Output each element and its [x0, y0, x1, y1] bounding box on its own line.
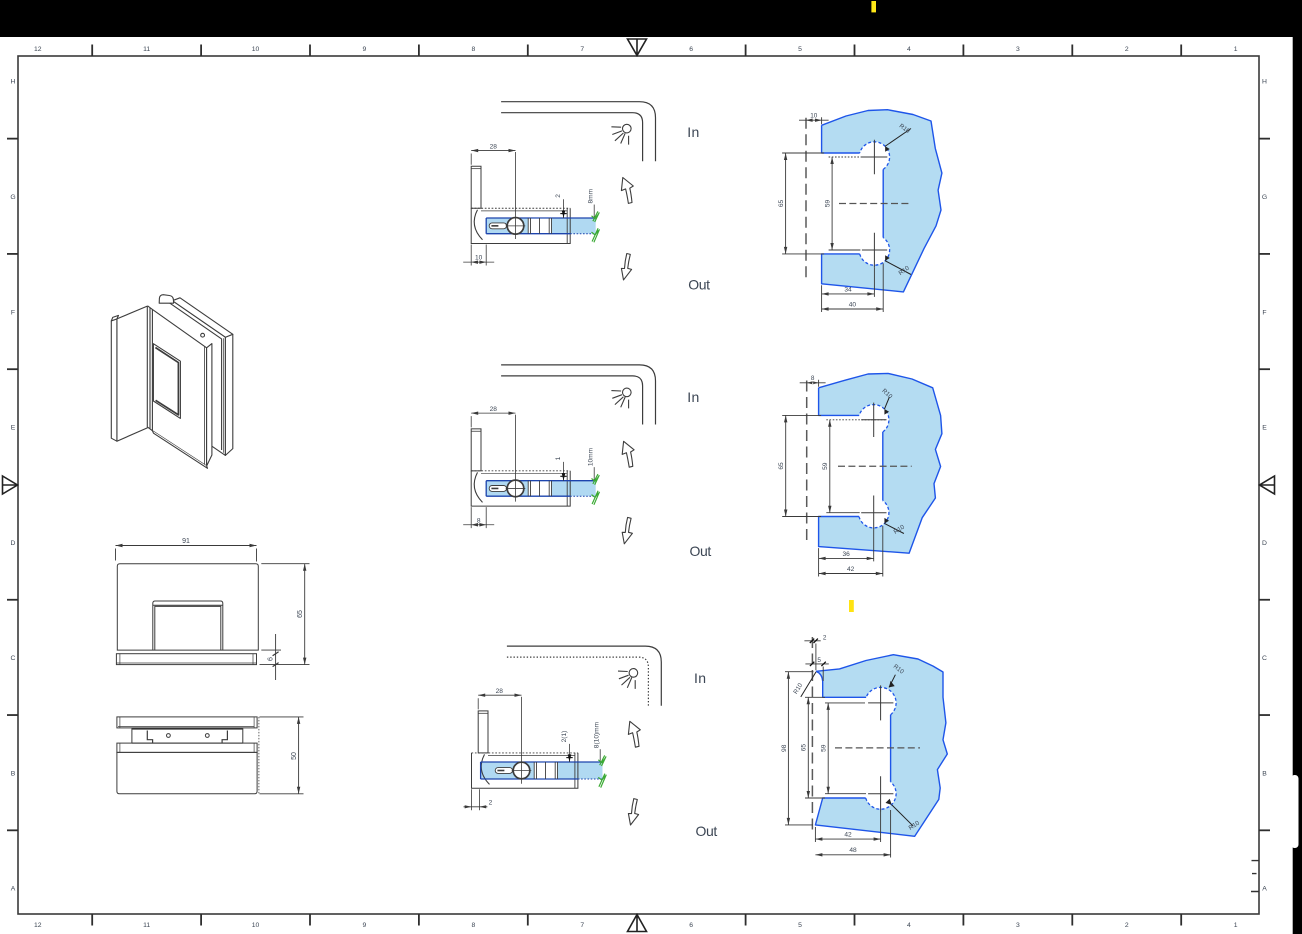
- svg-text:59: 59: [821, 744, 828, 752]
- svg-text:65: 65: [778, 462, 785, 470]
- svg-text:C: C: [1262, 655, 1267, 662]
- svg-text:91: 91: [182, 538, 190, 545]
- svg-text:9: 9: [363, 46, 367, 53]
- svg-text:10mm: 10mm: [587, 447, 594, 466]
- svg-text:6: 6: [689, 922, 693, 929]
- svg-text:C: C: [11, 655, 16, 662]
- svg-text:G: G: [1262, 194, 1267, 201]
- svg-text:48: 48: [849, 847, 857, 854]
- svg-text:2(1): 2(1): [561, 731, 568, 743]
- svg-text:F: F: [11, 309, 15, 316]
- svg-text:Out: Out: [690, 543, 712, 559]
- svg-text:2: 2: [823, 635, 827, 642]
- svg-text:E: E: [1262, 425, 1267, 432]
- svg-text:5: 5: [817, 657, 821, 664]
- svg-text:B: B: [11, 770, 16, 777]
- svg-text:2: 2: [489, 799, 493, 806]
- svg-text:28: 28: [490, 406, 498, 413]
- svg-text:59: 59: [822, 462, 829, 470]
- svg-text:8: 8: [477, 517, 481, 524]
- svg-text:65: 65: [297, 610, 304, 618]
- svg-text:10: 10: [252, 46, 260, 53]
- svg-text:59: 59: [825, 200, 832, 208]
- svg-text:28: 28: [490, 144, 498, 151]
- svg-text:6: 6: [689, 46, 693, 53]
- svg-text:H: H: [11, 79, 16, 86]
- svg-text:Out: Out: [688, 277, 710, 293]
- svg-text:2: 2: [1125, 922, 1129, 929]
- svg-text:E: E: [11, 425, 16, 432]
- svg-text:A: A: [11, 886, 16, 893]
- svg-text:1: 1: [1234, 922, 1238, 929]
- svg-text:8(10)mm: 8(10)mm: [593, 721, 600, 748]
- svg-text:3: 3: [1016, 922, 1020, 929]
- svg-text:5: 5: [798, 922, 802, 929]
- svg-text:1: 1: [1234, 46, 1238, 53]
- svg-text:40: 40: [849, 301, 857, 308]
- svg-text:10: 10: [810, 113, 818, 120]
- svg-text:28: 28: [496, 688, 504, 695]
- svg-text:11: 11: [143, 46, 150, 53]
- svg-text:65: 65: [778, 199, 785, 207]
- svg-text:F: F: [1262, 309, 1266, 316]
- svg-text:10: 10: [252, 922, 260, 929]
- svg-text:8mm: 8mm: [587, 188, 594, 203]
- svg-text:8: 8: [471, 46, 475, 53]
- svg-text:1: 1: [555, 456, 562, 460]
- svg-text:2: 2: [555, 194, 562, 198]
- svg-text:5: 5: [798, 46, 802, 53]
- svg-text:In: In: [687, 124, 699, 140]
- svg-text:7: 7: [580, 922, 584, 929]
- svg-text:6: 6: [268, 657, 275, 661]
- svg-text:11: 11: [143, 922, 150, 929]
- svg-text:G: G: [10, 194, 15, 201]
- svg-text:In: In: [694, 670, 706, 686]
- svg-text:4: 4: [907, 46, 911, 53]
- svg-text:42: 42: [847, 566, 855, 573]
- svg-text:34: 34: [844, 286, 852, 293]
- svg-text:A: A: [1262, 886, 1267, 893]
- svg-text:12: 12: [34, 922, 42, 929]
- svg-text:4: 4: [907, 922, 911, 929]
- svg-text:H: H: [1262, 79, 1267, 86]
- svg-text:Out: Out: [696, 823, 718, 839]
- svg-text:12: 12: [34, 46, 42, 53]
- svg-text:10: 10: [475, 255, 483, 262]
- svg-text:B: B: [1262, 770, 1267, 777]
- svg-text:50: 50: [291, 752, 298, 760]
- svg-text:9: 9: [363, 922, 367, 929]
- svg-text:8: 8: [471, 922, 475, 929]
- svg-text:In: In: [687, 389, 699, 405]
- svg-text:42: 42: [844, 832, 852, 839]
- svg-text:7: 7: [580, 46, 584, 53]
- svg-text:D: D: [1262, 540, 1267, 547]
- svg-text:3: 3: [1016, 46, 1020, 53]
- svg-text:8: 8: [811, 375, 815, 382]
- svg-text:98: 98: [781, 744, 788, 752]
- svg-text:2: 2: [1125, 46, 1129, 53]
- svg-text:36: 36: [842, 551, 850, 558]
- svg-text:D: D: [11, 540, 16, 547]
- svg-text:65: 65: [801, 744, 808, 752]
